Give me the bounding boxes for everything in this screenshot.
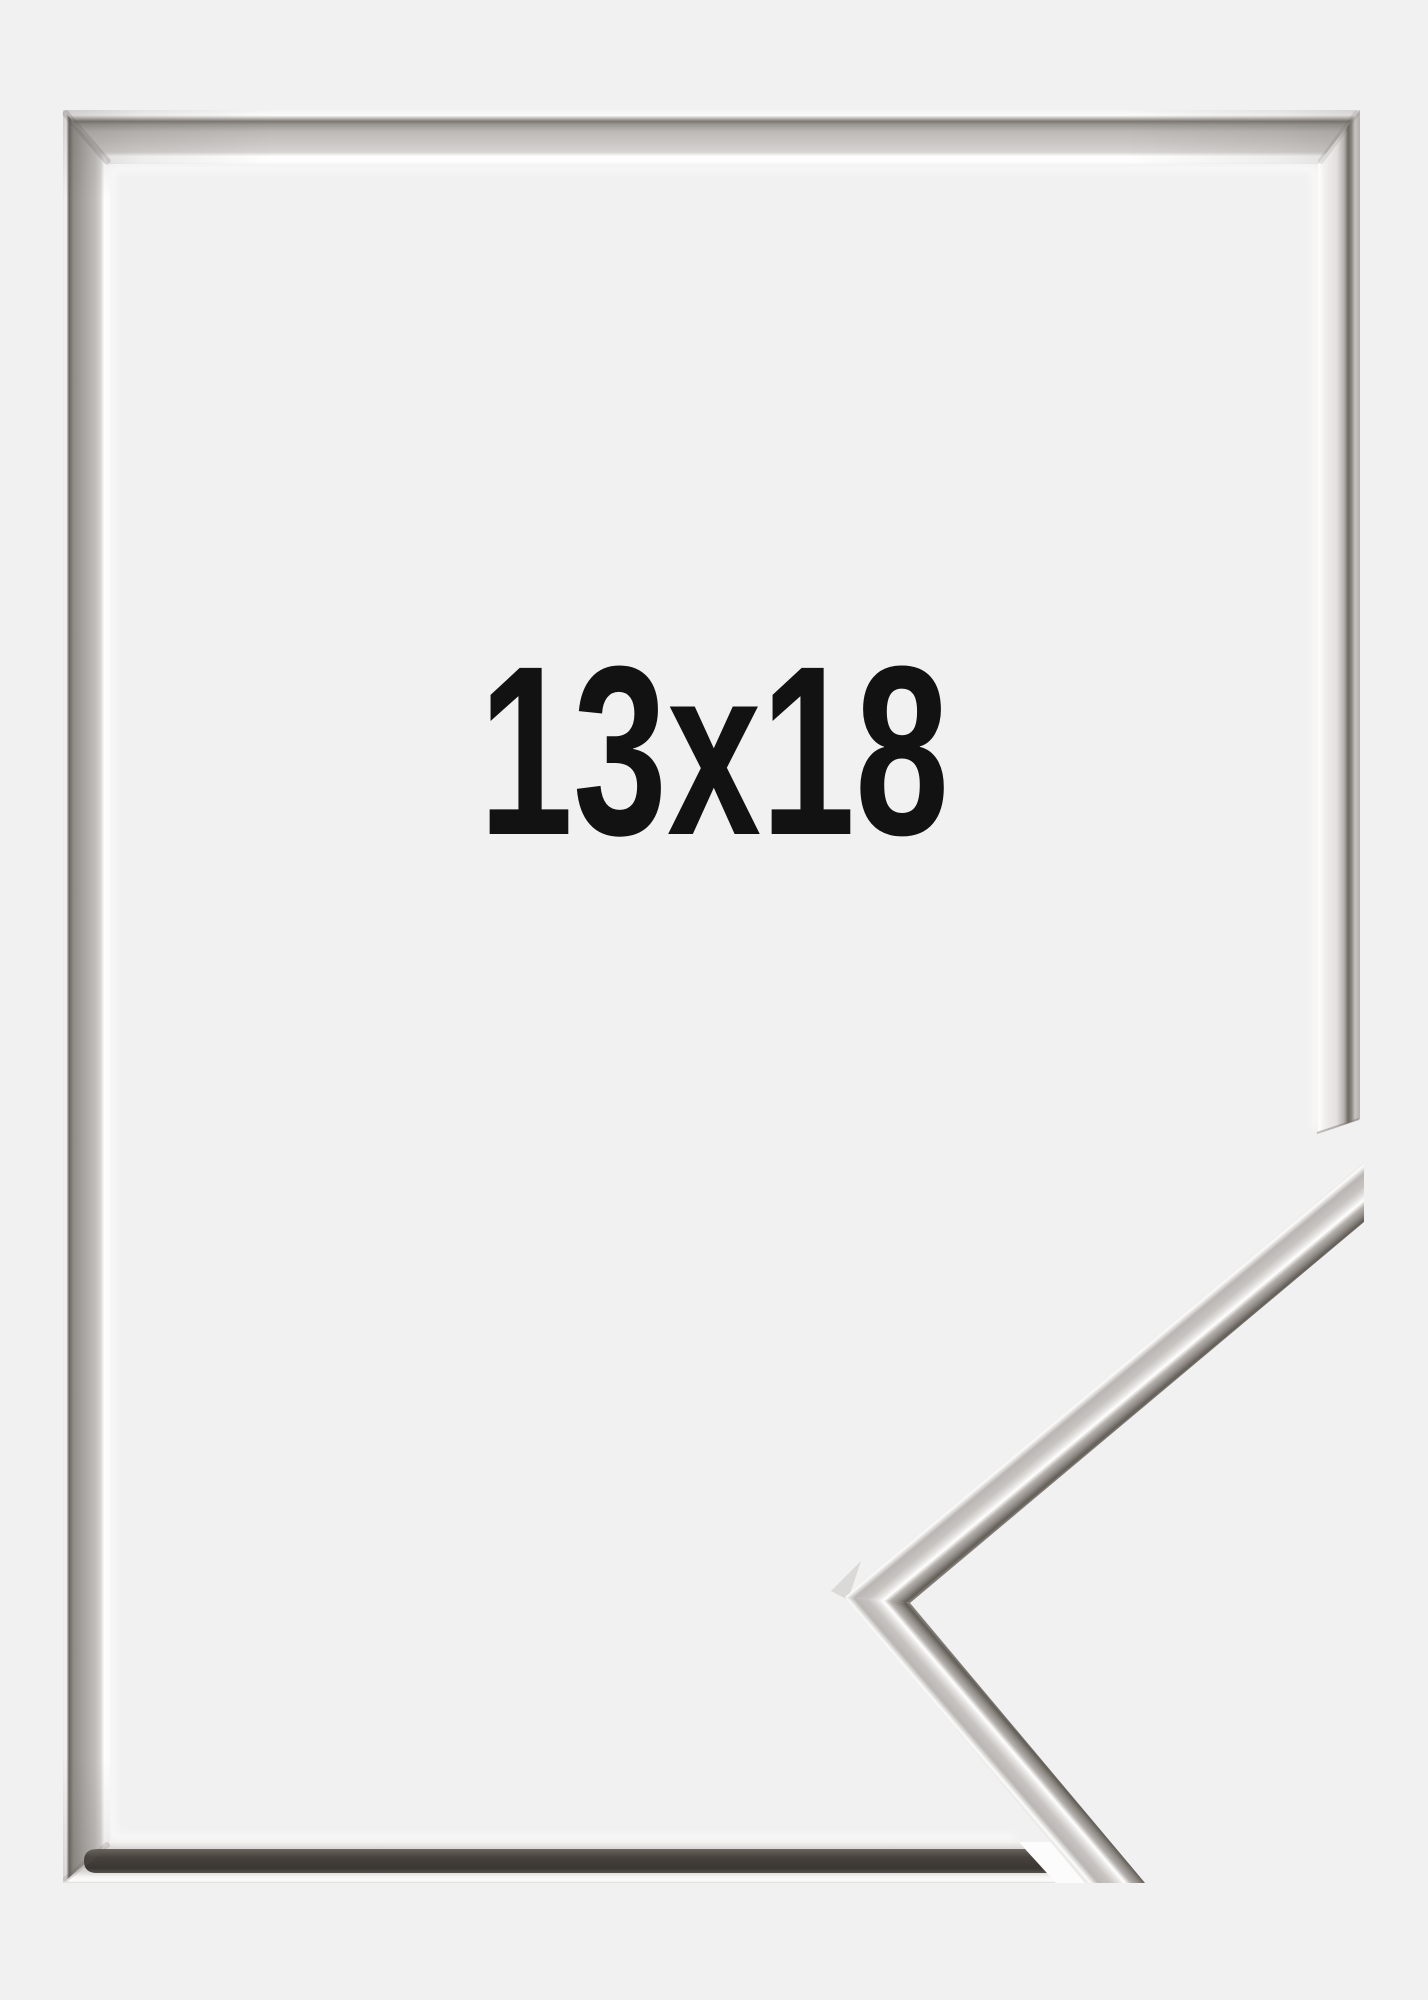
frame-left-rail-shading — [63, 110, 110, 1883]
frame-top-rail-shading — [63, 110, 1360, 164]
frame-bottom-shadow-band — [84, 1849, 1047, 1873]
frame-photo-svg: 13x18 — [0, 0, 1428, 2000]
photo-background — [0, 0, 1428, 2000]
size-label: 13x18 — [479, 617, 949, 886]
product-photo: 13x18 — [0, 0, 1428, 2000]
frame-right-rail — [1318, 110, 1360, 1134]
